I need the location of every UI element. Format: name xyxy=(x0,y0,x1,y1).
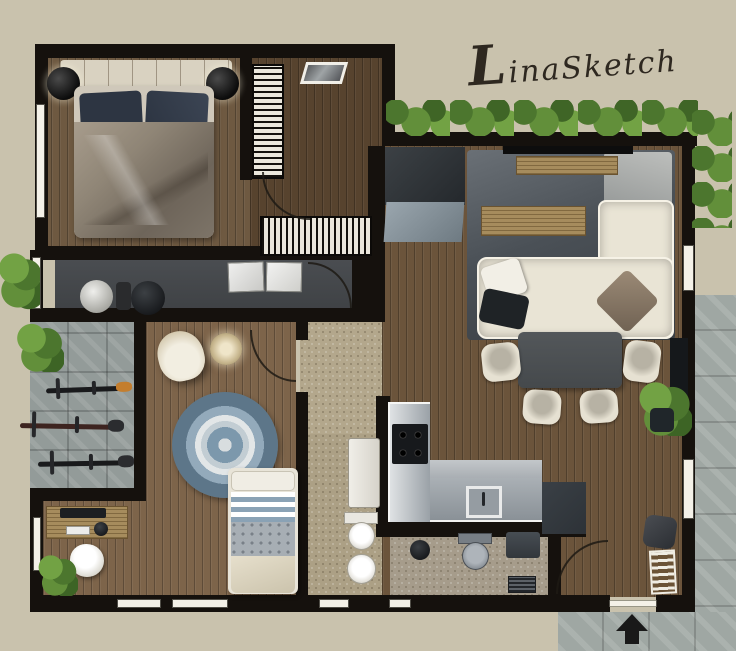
dining-chair-3 xyxy=(522,389,562,426)
shower-drain xyxy=(508,576,536,593)
wall-balcony-kids xyxy=(134,322,146,488)
bicycle-saddle xyxy=(116,382,132,392)
hedge-right xyxy=(692,110,732,228)
bicycle-saddle xyxy=(108,420,124,432)
window-right-2 xyxy=(684,460,693,518)
window-bottom-2 xyxy=(173,600,227,607)
bicycle-saddle xyxy=(118,456,134,467)
entrance-arrow-head xyxy=(616,614,648,631)
corridor-cylinder xyxy=(116,282,131,310)
kids-bed-throw xyxy=(231,556,295,593)
window-bottom-1 xyxy=(118,600,160,607)
bath-right-stool xyxy=(410,540,430,560)
coffee-table xyxy=(481,206,586,236)
tv xyxy=(503,146,633,154)
window-bottom-4 xyxy=(390,600,410,607)
bidet-left xyxy=(347,554,376,584)
terrace-tiles-right xyxy=(693,295,736,651)
dining-chair-4 xyxy=(579,389,619,425)
corridor-stool-dark xyxy=(131,281,165,315)
kids-bed-stripes xyxy=(231,492,295,522)
shoe-rack xyxy=(649,549,677,594)
signature: LinaSketch xyxy=(466,18,710,105)
bath-left-vanity xyxy=(348,438,380,508)
bicycle-pedals xyxy=(91,381,95,395)
bush-balcony-corner xyxy=(14,320,64,372)
corridor-stool-white xyxy=(80,280,113,313)
bicycle-3 xyxy=(38,447,134,477)
plant-living-pot xyxy=(650,408,674,432)
kitchen-faucet xyxy=(482,492,485,506)
hedge-top xyxy=(386,100,698,136)
kids-side-table xyxy=(210,333,242,365)
window-bottom-3 xyxy=(320,600,348,607)
entrance-arrow-stem xyxy=(625,630,639,644)
bicycle-pedals xyxy=(89,453,93,469)
kitchen-tall-unit xyxy=(542,482,586,534)
bicycle-handlebar xyxy=(56,378,61,399)
wall-bedroom-divider xyxy=(240,58,252,180)
bicycle-pedals xyxy=(75,416,79,433)
dining-chair-1 xyxy=(480,341,522,383)
desk-mug xyxy=(94,522,108,536)
hallway-floor xyxy=(300,322,382,434)
tv-console xyxy=(516,156,618,175)
dining-table xyxy=(518,332,622,388)
wall-bottom-main xyxy=(30,595,558,612)
bicycle-handlebar xyxy=(49,450,53,474)
bicycle-1 xyxy=(46,375,133,402)
entry-closet xyxy=(385,147,465,205)
corridor-cabinet-b xyxy=(266,262,303,293)
desk-plant xyxy=(36,552,78,596)
kitchen-backsplash xyxy=(430,460,542,478)
bush-left-outer xyxy=(0,246,40,310)
entry-mat xyxy=(384,202,465,242)
window-master-left xyxy=(37,105,44,217)
clothes-rack xyxy=(260,216,372,256)
master-wardrobe xyxy=(252,64,284,179)
desk-monitor xyxy=(60,508,106,518)
dressing-mirror xyxy=(300,62,348,84)
wall-kids-hall-a xyxy=(296,322,308,340)
wall-balcony-bottom xyxy=(30,488,146,501)
kitchen-hob xyxy=(392,424,428,464)
kids-bed-pillow xyxy=(231,471,295,491)
wall-top xyxy=(35,44,395,58)
wall-sink-right xyxy=(506,532,540,558)
desk-keyboard xyxy=(66,526,90,535)
floor-plan: LinaSketch xyxy=(0,0,736,651)
wall-corridor-right xyxy=(352,246,385,322)
toilet-left-bowl xyxy=(348,522,375,550)
window-right-1 xyxy=(684,246,693,290)
entrance-door-sill xyxy=(610,601,656,606)
bicycle-2 xyxy=(20,409,125,441)
corridor-cabinet-a xyxy=(227,261,264,292)
toilet-right-bowl xyxy=(462,542,489,570)
entrance-bench xyxy=(642,514,678,550)
wall-bottom-entrance-left xyxy=(558,595,610,612)
kids-bed-blanket xyxy=(231,522,295,556)
bed-duvet-fold xyxy=(80,135,208,225)
